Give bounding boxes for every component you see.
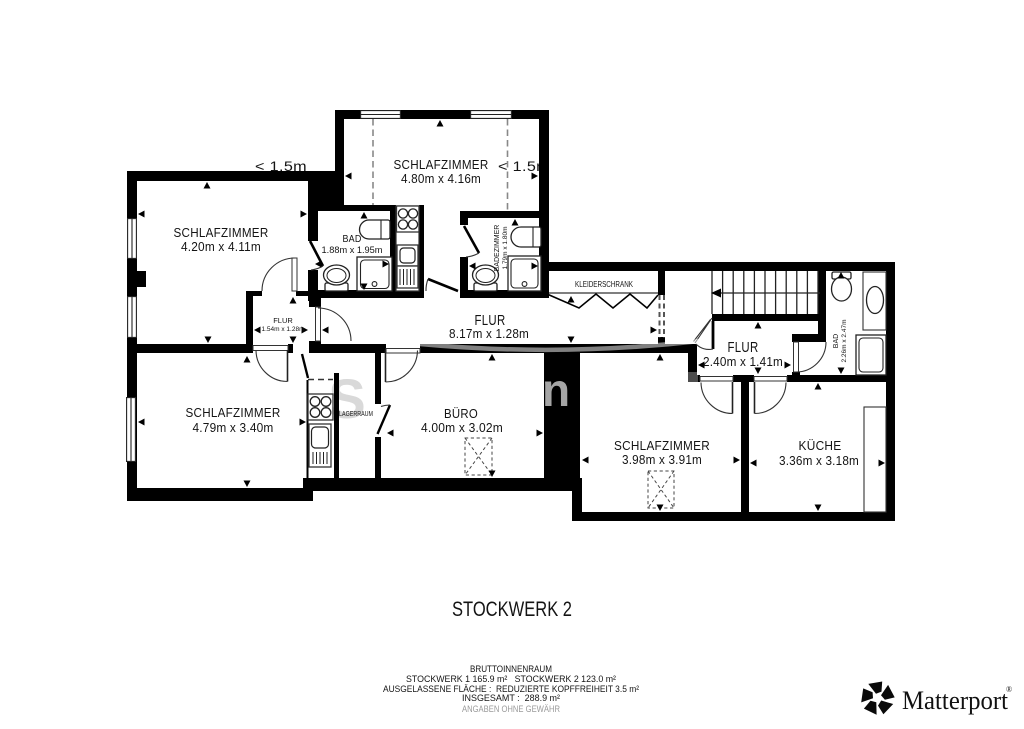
svg-text:®: ® — [1006, 685, 1012, 694]
svg-text:8.17m x 1.28m: 8.17m x 1.28m — [449, 327, 529, 341]
svg-text:4.79m x 3.40m: 4.79m x 3.40m — [193, 421, 274, 435]
svg-text:BÜRO: BÜRO — [444, 406, 478, 421]
svg-text:FLUR: FLUR — [273, 316, 293, 325]
svg-text:BAD: BAD — [343, 234, 362, 245]
svg-text:4.80m x 4.16m: 4.80m x 4.16m — [401, 172, 481, 186]
svg-text:BADEZIMMER: BADEZIMMER — [494, 225, 501, 272]
svg-text:n: n — [542, 364, 570, 416]
svg-text:KLEIDERSCHRANK: KLEIDERSCHRANK — [575, 280, 634, 289]
svg-text:STOCKWERK 2: STOCKWERK 2 — [452, 598, 572, 621]
svg-text:KÜCHE: KÜCHE — [799, 438, 842, 453]
svg-text:4.00m x 3.02m: 4.00m x 3.02m — [421, 421, 503, 435]
svg-text:3.36m x 3.18m: 3.36m x 3.18m — [779, 454, 859, 468]
svg-text:1.54m x 1.28m: 1.54m x 1.28m — [262, 326, 305, 333]
svg-text:SCHLAFZIMMER: SCHLAFZIMMER — [614, 438, 710, 453]
svg-text:INSGESAMT : 288.9 m²: INSGESAMT : 288.9 m² — [462, 693, 560, 704]
svg-text:1.79m x 1.80m: 1.79m x 1.80m — [502, 227, 509, 270]
svg-text:2.26m x 2.47m: 2.26m x 2.47m — [841, 320, 848, 363]
svg-text:1.88m x 1.95m: 1.88m x 1.95m — [322, 245, 383, 256]
svg-text:ANGABEN OHNE GEWÄHR: ANGABEN OHNE GEWÄHR — [462, 704, 560, 715]
svg-text:2.40m x 1.41m: 2.40m x 1.41m — [703, 355, 783, 369]
svg-text:S: S — [328, 367, 365, 430]
svg-text:LAGERRAUM: LAGERRAUM — [339, 411, 373, 418]
svg-text:SCHLAFZIMMER: SCHLAFZIMMER — [394, 157, 489, 172]
svg-text:Matterport: Matterport — [902, 686, 1009, 715]
svg-text:BAD: BAD — [833, 334, 840, 348]
svg-text:3.98m x 3.91m: 3.98m x 3.91m — [622, 453, 702, 467]
svg-text:FLUR: FLUR — [728, 340, 759, 356]
svg-text:4.20m x 4.11m: 4.20m x 4.11m — [181, 240, 261, 254]
svg-text:SCHLAFZIMMER: SCHLAFZIMMER — [174, 225, 269, 240]
svg-text:SCHLAFZIMMER: SCHLAFZIMMER — [186, 405, 281, 420]
svg-text:< 1.5m: < 1.5m — [255, 159, 307, 174]
